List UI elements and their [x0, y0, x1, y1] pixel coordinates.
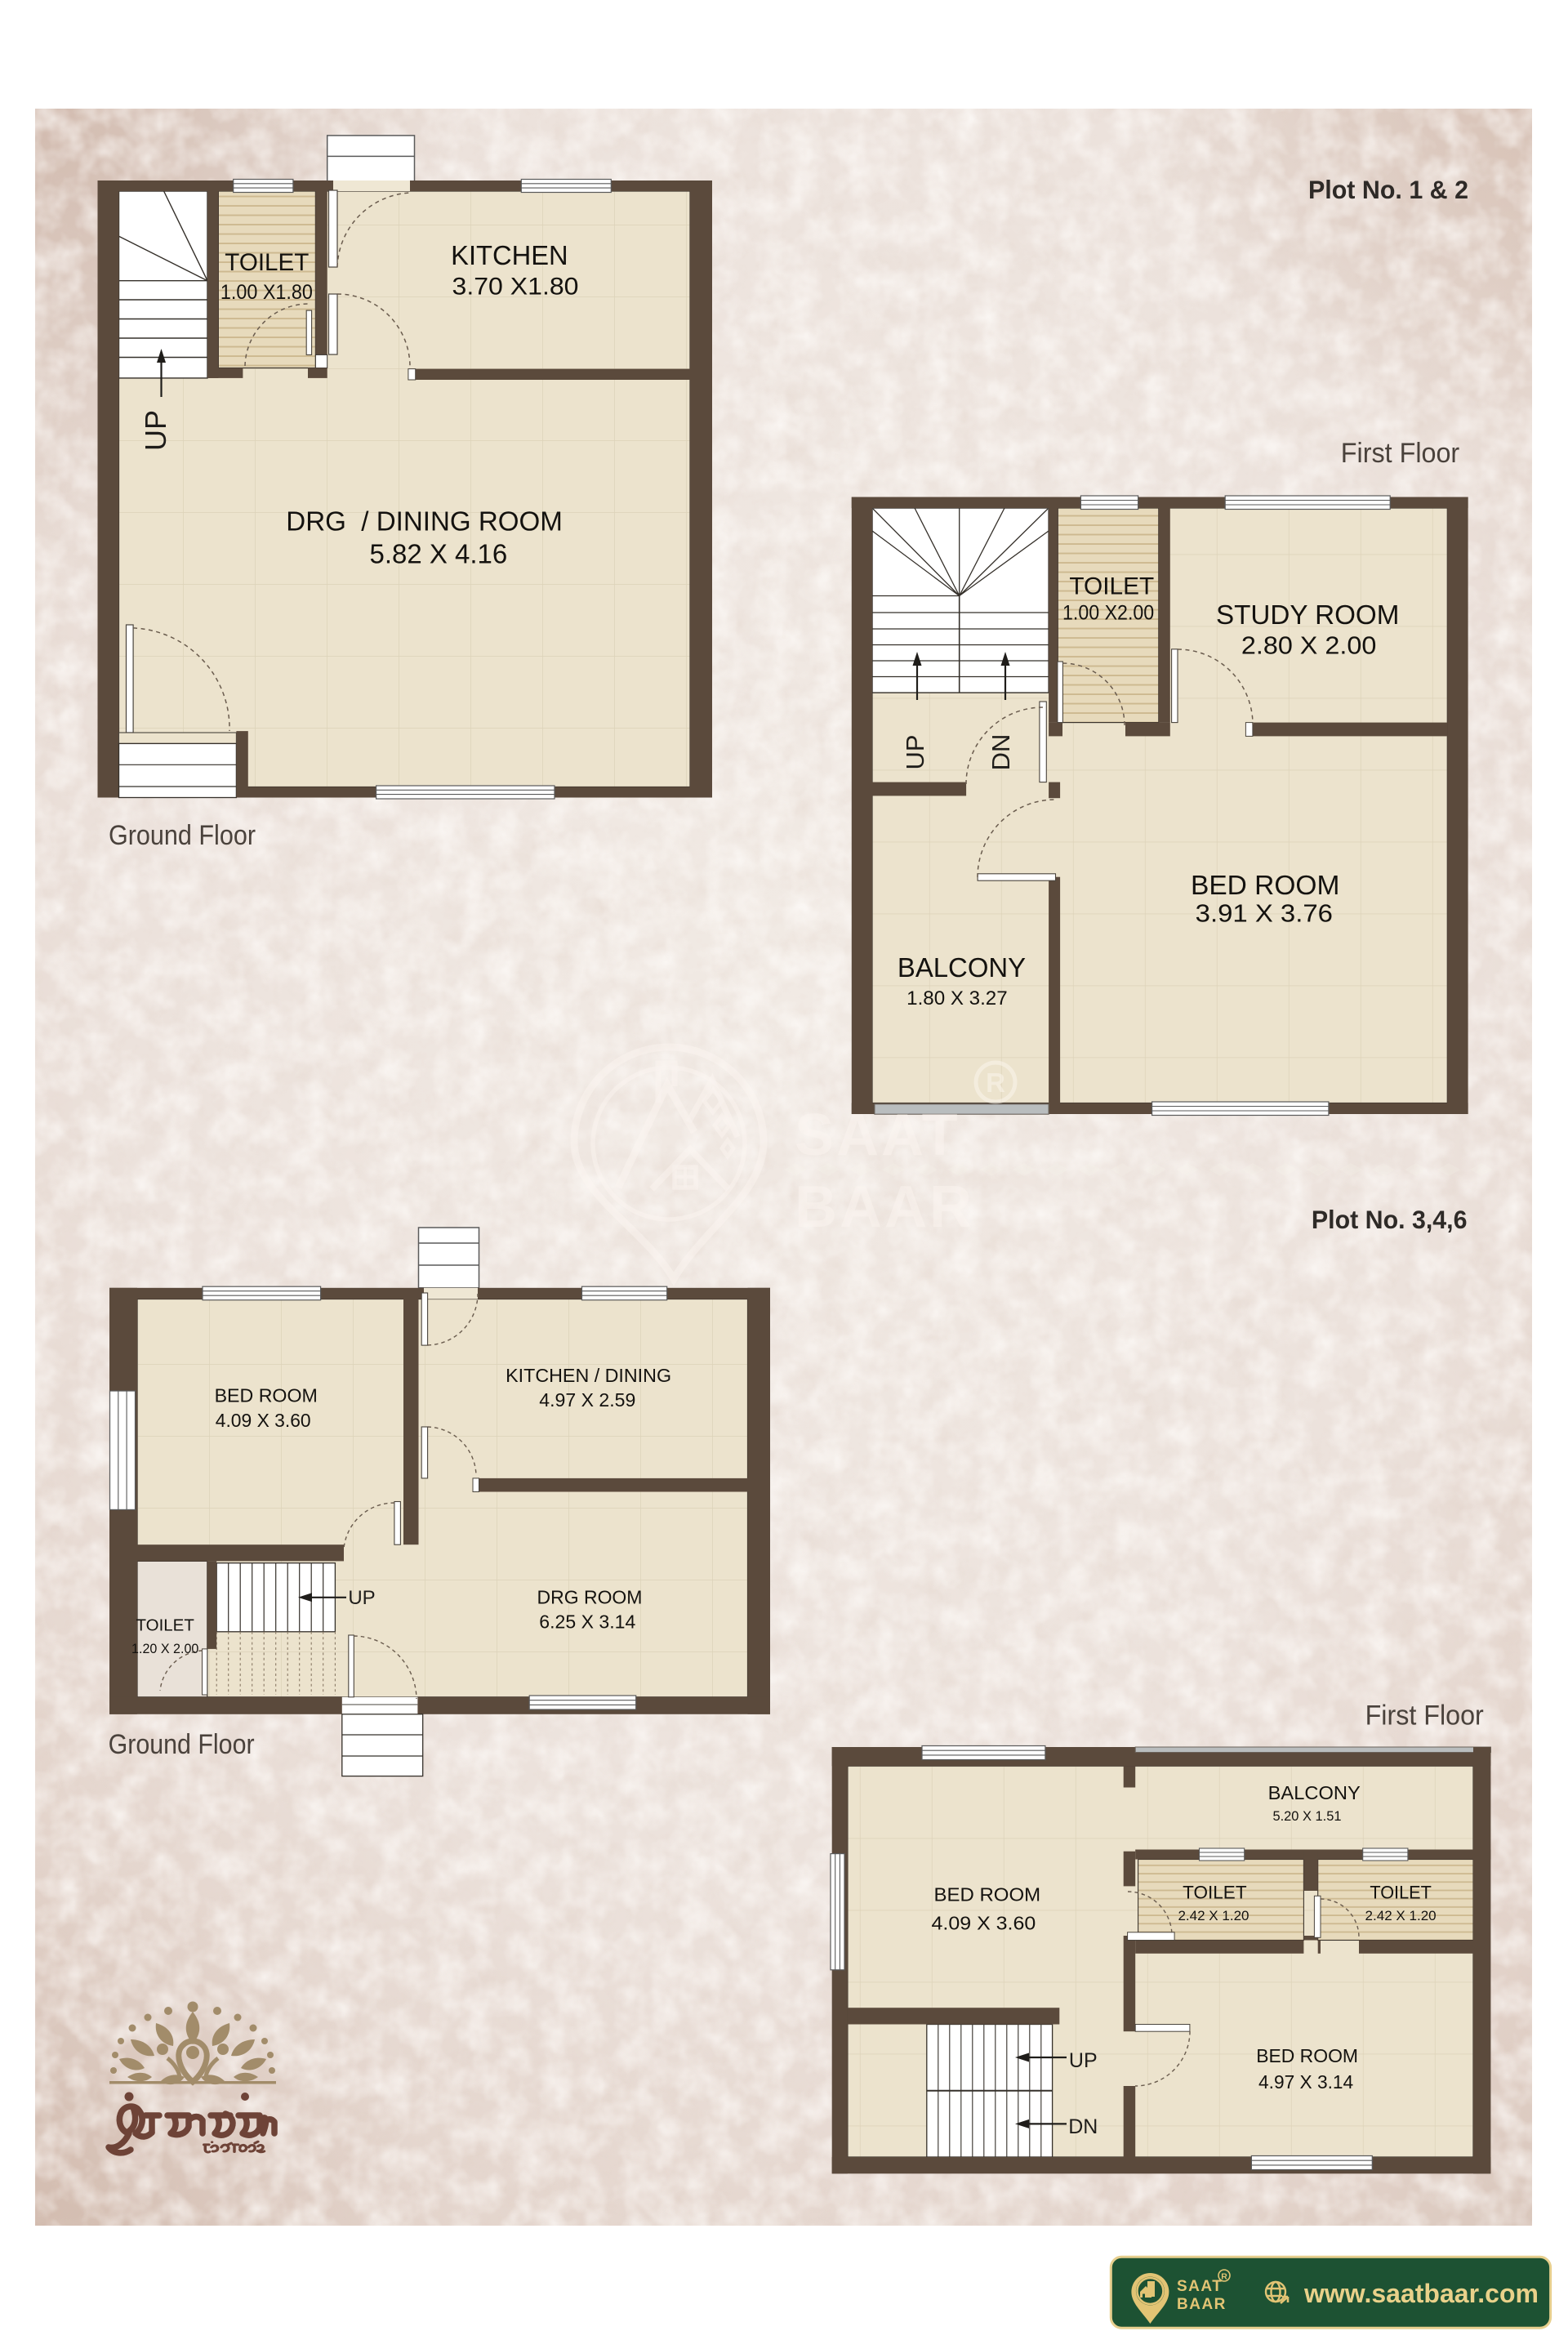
- svg-text:1.00 X1.80: 1.00 X1.80: [220, 281, 313, 304]
- svg-text:BED ROOM: BED ROOM: [1191, 870, 1339, 900]
- svg-text:KITCHEN / DINING: KITCHEN / DINING: [506, 1365, 671, 1386]
- svg-text:First Floor: First Floor: [1341, 438, 1459, 469]
- svg-text:1.80 X 3.27: 1.80 X 3.27: [906, 987, 1008, 1010]
- svg-text:www.saatbaar.com: www.saatbaar.com: [1303, 2279, 1539, 2308]
- svg-text:UP: UP: [139, 410, 172, 451]
- svg-text:4.97 X 2.59: 4.97 X 2.59: [539, 1389, 635, 1411]
- svg-text:TOILET: TOILET: [1183, 1883, 1246, 1903]
- svg-text:2.42 X 1.20: 2.42 X 1.20: [1178, 1908, 1249, 1923]
- svg-text:BALCONY: BALCONY: [1268, 1782, 1361, 1803]
- svg-text:2.80 X 2.00: 2.80 X 2.00: [1241, 631, 1377, 659]
- svg-text:R: R: [1221, 2272, 1227, 2282]
- svg-text:3.70 X1.80: 3.70 X1.80: [452, 274, 579, 301]
- svg-text:1.20 X 2.00: 1.20 X 2.00: [131, 1641, 198, 1656]
- svg-text:TOILET: TOILET: [1069, 573, 1154, 600]
- svg-text:Plot No. 1 & 2: Plot No. 1 & 2: [1308, 175, 1468, 204]
- svg-text:TOILET: TOILET: [136, 1616, 194, 1634]
- svg-text:STUDY ROOM: STUDY ROOM: [1216, 599, 1400, 630]
- svg-text:5.82 X 4.16: 5.82 X 4.16: [370, 539, 508, 569]
- svg-text:BED ROOM: BED ROOM: [934, 1884, 1041, 1905]
- svg-text:DRG ROOM: DRG ROOM: [537, 1587, 643, 1608]
- svg-text:TOILET: TOILET: [225, 249, 309, 276]
- svg-text:BALCONY: BALCONY: [898, 952, 1026, 983]
- svg-text:BED ROOM: BED ROOM: [1256, 2045, 1358, 2066]
- svg-text:UP: UP: [901, 734, 929, 769]
- svg-text:DN: DN: [1068, 2115, 1098, 2138]
- svg-text:BAAR: BAAR: [795, 1174, 974, 1240]
- svg-text:DN: DN: [987, 734, 1015, 771]
- svg-text:TOILET: TOILET: [1370, 1883, 1432, 1903]
- svg-text:1.00 X2.00: 1.00 X2.00: [1062, 601, 1154, 624]
- svg-text:SAAT: SAAT: [1177, 2278, 1223, 2295]
- svg-text:3.91 X 3.76: 3.91 X 3.76: [1196, 899, 1333, 928]
- svg-text:4.09 X 3.60: 4.09 X 3.60: [216, 1410, 311, 1431]
- svg-text:4.09 X 3.60: 4.09 X 3.60: [932, 1912, 1036, 1933]
- svg-text:Ground Floor: Ground Floor: [109, 1729, 255, 1760]
- svg-text:KITCHEN: KITCHEN: [451, 240, 568, 270]
- svg-text:DRG / DINING ROOM: DRG / DINING ROOM: [286, 506, 563, 536]
- svg-text:5.20 X 1.51: 5.20 X 1.51: [1272, 1808, 1341, 1824]
- svg-text:R: R: [986, 1067, 1005, 1098]
- svg-text:UP: UP: [348, 1587, 375, 1609]
- svg-text:UP: UP: [1069, 2049, 1098, 2072]
- svg-text:6.25 X 3.14: 6.25 X 3.14: [539, 1611, 635, 1633]
- svg-text:SAAT: SAAT: [795, 1103, 960, 1168]
- svg-text:4.97 X 3.14: 4.97 X 3.14: [1258, 2071, 1353, 2093]
- svg-text:First Floor: First Floor: [1365, 1700, 1484, 1732]
- svg-text:BAAR: BAAR: [1177, 2296, 1227, 2313]
- svg-text:BED ROOM: BED ROOM: [215, 1385, 318, 1406]
- svg-text:2.42 X 1.20: 2.42 X 1.20: [1365, 1908, 1437, 1923]
- svg-text:Ground Floor: Ground Floor: [109, 820, 256, 851]
- svg-text:Plot No. 3,4,6: Plot No. 3,4,6: [1312, 1205, 1468, 1234]
